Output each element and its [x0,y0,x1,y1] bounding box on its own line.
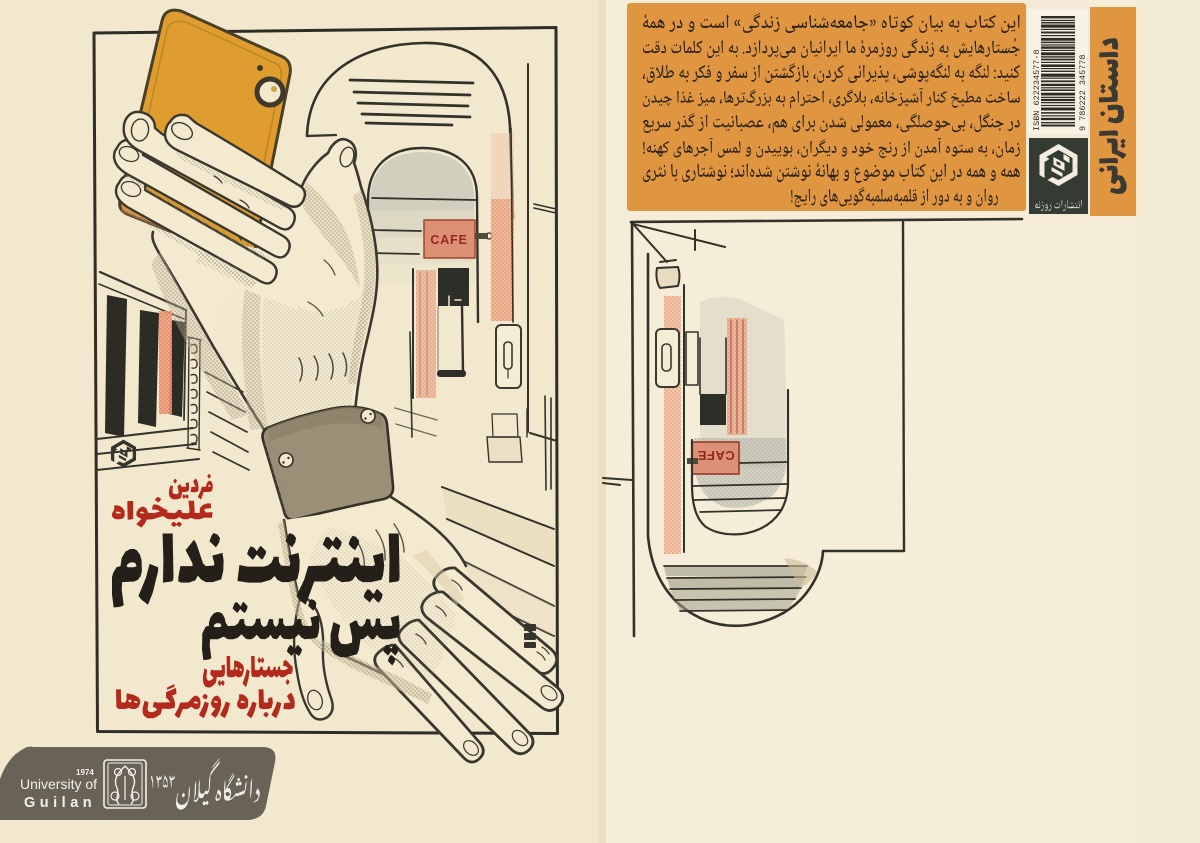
svg-text:ISBN 622234577-8: ISBN 622234577-8 [1032,49,1042,131]
svg-text:Guilan: Guilan [24,795,96,811]
svg-text:9 786222 345778: 9 786222 345778 [1078,54,1088,131]
svg-text:CAFE: CAFE [697,448,734,463]
svg-text:University of: University of [20,776,97,792]
svg-text:CAFE: CAFE [430,233,467,247]
